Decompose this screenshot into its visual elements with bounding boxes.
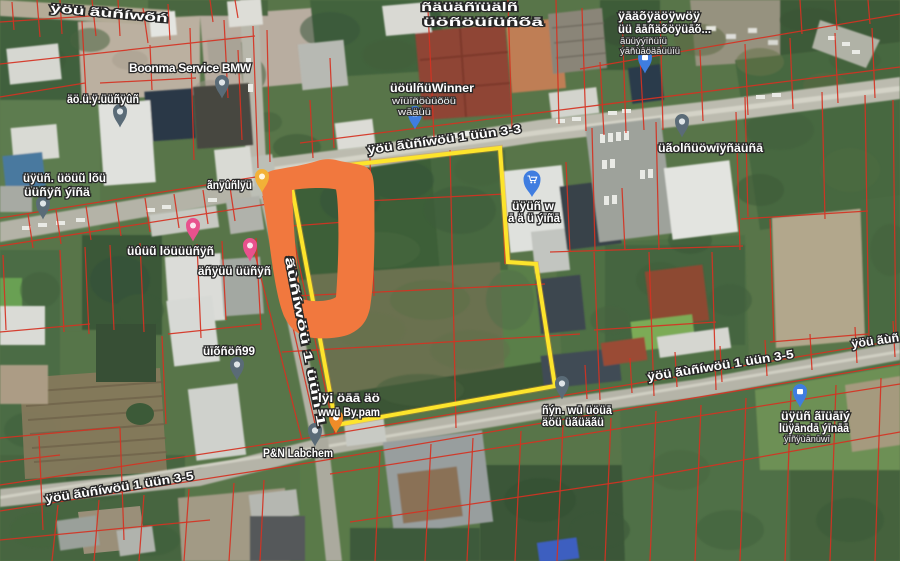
- svg-text:wāäüü: wāäüü: [397, 107, 431, 118]
- svg-text:wīüīñöùüõöü: wīüīñöùüõöü: [391, 96, 456, 107]
- svg-text:üīõñöñ99: üīõñöñ99: [203, 344, 255, 358]
- svg-text:üöñöüíüñõā: üöñöüíüñõā: [423, 15, 544, 29]
- svg-text:üûüũ löüüüñÿñ: üûüũ löüüüñÿñ: [127, 244, 214, 258]
- svg-text:üöülñüWinner: üöülñüWinner: [390, 81, 474, 95]
- svg-text:wwū By.pam: wwū By.pam: [317, 405, 380, 419]
- svg-text:Boonma Service BMW: Boonma Service BMW: [129, 61, 252, 75]
- svg-text:äö.ü.ÿ.üüñÿûñ: äö.ü.ÿ.üüñÿûñ: [67, 92, 139, 106]
- svg-text:P&N Labchem: P&N Labchem: [263, 446, 333, 460]
- svg-text:ÿīñÿùānūwī: ÿīñÿùānūwī: [784, 434, 830, 445]
- svg-text:lüÿāndā ýīnāā: lüÿāndā ýīnāā: [779, 421, 849, 435]
- svg-text:äñÿüü üüñÿñ: äñÿüü üüñÿñ: [198, 264, 271, 278]
- svg-text:ā ä ü ýīñā: ā ä ü ýīñā: [508, 211, 560, 225]
- svg-text:üÿüñ. üöüũ lõü: üÿüñ. üöüũ lõü: [23, 171, 106, 185]
- svg-text:üüñÿñ ýīñä: üüñÿñ ýīñä: [24, 185, 90, 199]
- svg-text:ãnÿûñlÿü: ãnÿûñlÿü: [207, 178, 252, 192]
- svg-text:üü āāñäõöÿüāõ...: üü āāñäõöÿüāõ...: [618, 22, 711, 36]
- svg-text:ÿāäõÿäöÿwöÿ: ÿāäõÿäöÿwöÿ: [618, 9, 700, 23]
- svg-text:äöü üãüäãü: äöü üãüäãü: [542, 415, 604, 429]
- svg-text:üãolñüöwīÿñäüñā: üãolñüöwīÿñäüñā: [658, 141, 763, 155]
- svg-text:ñäüäñïüälñ: ñäüäñïüälñ: [421, 0, 518, 14]
- svg-text:ýāñùāöäāüüīü: ýāñùāöäāüüīü: [620, 46, 680, 57]
- svg-text:lÿi öāā äö: lÿi öāā äö: [318, 391, 380, 405]
